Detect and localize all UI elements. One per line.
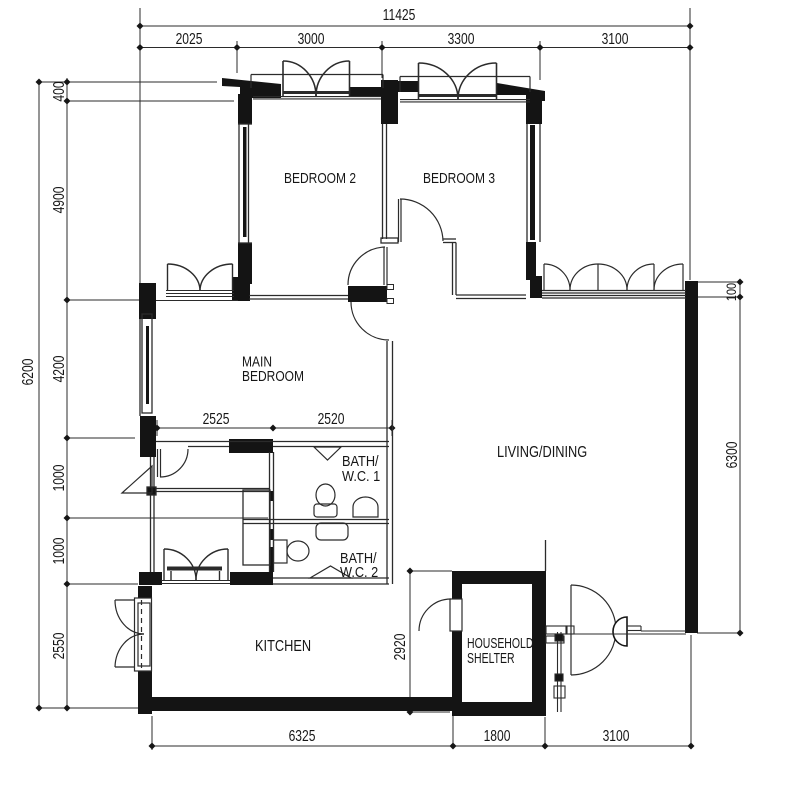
svg-text:6325: 6325 — [289, 727, 316, 745]
svg-text:1000: 1000 — [50, 464, 68, 491]
svg-text:6200: 6200 — [19, 358, 37, 385]
svg-text:W.C. 2: W.C. 2 — [340, 563, 378, 580]
svg-text:1000: 1000 — [50, 537, 68, 564]
svg-text:LIVING/DINING: LIVING/DINING — [497, 444, 587, 462]
svg-text:6300: 6300 — [723, 441, 741, 468]
svg-text:BEDROOM 3: BEDROOM 3 — [423, 170, 495, 187]
svg-text:3000: 3000 — [298, 30, 325, 48]
svg-text:4200: 4200 — [50, 355, 68, 382]
svg-text:BEDROOM: BEDROOM — [242, 368, 304, 385]
svg-text:2550: 2550 — [50, 632, 68, 659]
svg-text:SHELTER: SHELTER — [467, 649, 515, 666]
svg-text:400: 400 — [50, 81, 68, 101]
svg-text:3100: 3100 — [603, 727, 630, 745]
svg-text:11425: 11425 — [383, 6, 416, 24]
svg-text:BEDROOM 2: BEDROOM 2 — [284, 170, 356, 187]
svg-text:3100: 3100 — [602, 30, 629, 48]
svg-text:KITCHEN: KITCHEN — [255, 638, 311, 656]
svg-text:100: 100 — [724, 283, 740, 301]
svg-text:3300: 3300 — [448, 30, 475, 48]
svg-text:4900: 4900 — [50, 186, 68, 213]
svg-text:1800: 1800 — [484, 727, 511, 745]
svg-text:W.C. 1: W.C. 1 — [342, 467, 380, 484]
svg-text:2525: 2525 — [203, 410, 230, 428]
svg-text:2025: 2025 — [176, 30, 203, 48]
svg-text:2920: 2920 — [391, 633, 409, 660]
svg-text:2520: 2520 — [318, 410, 345, 428]
